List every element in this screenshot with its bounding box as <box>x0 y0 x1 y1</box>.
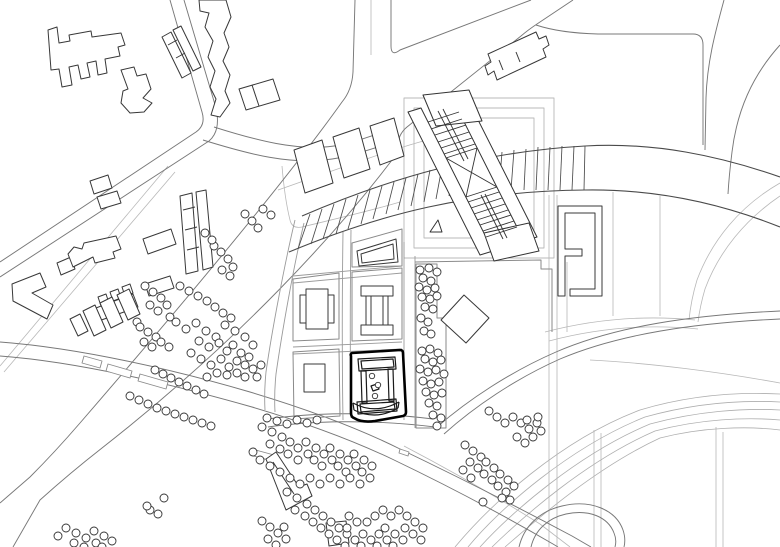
tree-icon <box>371 512 379 520</box>
tree-icon <box>403 512 411 520</box>
tree-icon <box>291 506 299 514</box>
tree-icon <box>284 450 292 458</box>
tree-icon <box>304 450 312 458</box>
tree-icon <box>293 416 301 424</box>
tree-icon <box>372 393 377 398</box>
tree-icon <box>221 321 229 329</box>
tree-icon <box>534 413 542 421</box>
tree-icon <box>360 456 368 464</box>
tree-icon <box>328 456 336 464</box>
tree-icon <box>391 530 399 538</box>
tree-icon <box>336 480 344 488</box>
light-guides-shape <box>590 360 780 383</box>
tree-icon <box>419 274 427 282</box>
tree-icon <box>523 416 531 424</box>
tree-icon <box>154 307 162 315</box>
tree-icon <box>263 414 271 422</box>
tree-icon <box>419 524 427 532</box>
tree-icon <box>459 466 467 474</box>
tree-icon <box>187 349 195 357</box>
tree-icon <box>157 338 165 346</box>
tree-icon <box>211 303 219 311</box>
bridge-band-rungs-shape <box>411 174 418 206</box>
triangle-marker-shape <box>430 220 442 232</box>
tree-icon <box>293 494 301 502</box>
tram-tracks-shape <box>455 393 780 547</box>
tree-icon <box>197 355 205 363</box>
tree-icon <box>469 447 477 455</box>
tree-icon <box>226 272 234 280</box>
tree-icon <box>429 305 437 313</box>
tree-icon <box>363 518 371 526</box>
bridge-band-rungs-shape <box>373 186 382 219</box>
tree-icon <box>498 494 506 502</box>
tree-icon <box>241 373 249 381</box>
tree-icon <box>467 474 475 482</box>
tree-icon <box>266 523 274 531</box>
bridge-band-edges-shape <box>302 145 780 216</box>
tree-icon <box>488 476 496 484</box>
tree-icon <box>62 524 70 532</box>
tree-icon <box>335 524 343 532</box>
tree-icon <box>296 480 304 488</box>
tree-icon <box>237 349 245 357</box>
new-buildings-shape <box>366 296 371 325</box>
tree-icon <box>333 536 341 544</box>
tree-icon <box>70 539 78 547</box>
tree-icon <box>249 341 257 349</box>
bridge-band-rungs-shape <box>424 170 430 202</box>
roads-shape <box>0 0 355 503</box>
tree-icon <box>241 333 249 341</box>
tree-icon <box>411 518 419 526</box>
tree-icon <box>357 542 365 547</box>
tree-icon <box>253 373 261 381</box>
roads-shape <box>728 45 780 194</box>
tree-icon <box>143 502 151 510</box>
tree-icon <box>496 470 504 478</box>
bridge-band-rungs-shape <box>348 195 358 229</box>
existing-buildings-shape <box>199 0 231 117</box>
tree-icon <box>208 236 216 244</box>
tree-icon <box>257 361 265 369</box>
tree-icon <box>341 542 349 547</box>
tree-icon <box>437 414 445 422</box>
tree-icon <box>433 268 441 276</box>
tree-icon <box>233 357 241 365</box>
tree-icon <box>180 413 188 421</box>
tree-icon <box>205 343 213 351</box>
tree-icon <box>280 523 288 531</box>
tree-icon <box>189 416 197 424</box>
new-buildings-shape <box>361 325 393 335</box>
tree-icon <box>258 423 266 431</box>
new-buildings-shape <box>304 364 325 392</box>
tree-icon <box>381 524 389 532</box>
tree-icon <box>430 391 438 399</box>
tree-icon <box>423 286 431 294</box>
tree-icon <box>157 294 165 302</box>
tree-icon <box>148 343 156 351</box>
new-buildings-shape <box>558 206 602 296</box>
tree-icon <box>217 355 225 363</box>
bridge-band-rungs-shape <box>572 146 574 190</box>
tree-icon <box>249 448 257 456</box>
tree-icon <box>326 444 334 452</box>
tree-icon <box>294 444 302 452</box>
new-buildings-shape <box>294 140 333 193</box>
tree-icon <box>416 266 424 274</box>
tree-icon <box>207 422 215 430</box>
tree-icon <box>192 319 200 327</box>
tree-icon <box>249 365 257 373</box>
tree-icon <box>334 462 342 470</box>
tree-icon <box>426 345 434 353</box>
tree-icon <box>352 462 360 470</box>
triangle-marker <box>430 220 442 232</box>
bridge-band-rungs-shape <box>536 147 538 190</box>
tree-icon <box>368 462 376 470</box>
tree-icon <box>375 530 383 538</box>
tree-icon <box>146 301 154 309</box>
existing-buildings-shape <box>68 236 121 267</box>
grid-streets-shape <box>342 232 343 420</box>
tree-icon <box>172 318 180 326</box>
tree-icon <box>409 530 417 538</box>
tree-icon <box>276 445 284 453</box>
roads-shape <box>531 513 616 547</box>
existing-buildings-shape <box>97 191 121 209</box>
tree-icon <box>223 371 231 379</box>
tree-icon <box>258 517 266 525</box>
tree-icon <box>359 530 367 538</box>
roads <box>0 0 780 547</box>
tree-icon <box>219 309 227 317</box>
tree-icon <box>163 301 171 309</box>
tree-icon <box>325 530 333 538</box>
tree-icon <box>276 468 284 476</box>
tree-icon <box>440 370 448 378</box>
tree-icon <box>72 529 80 537</box>
tree-icon <box>294 456 302 464</box>
new-buildings-shape <box>328 295 334 323</box>
tree-icon <box>319 512 327 520</box>
tree-icon <box>461 441 469 449</box>
tree-icon <box>351 536 359 544</box>
tree-icon <box>144 400 152 408</box>
tree-icon <box>433 422 441 430</box>
tree-icon <box>141 282 149 290</box>
tree-icon <box>301 512 309 520</box>
grid-streets-shape <box>293 342 402 347</box>
tree-icon <box>513 433 521 441</box>
tree-icon <box>437 356 445 364</box>
tree-icon <box>160 494 168 502</box>
tree-icon <box>302 438 310 446</box>
tree-icon <box>135 396 143 404</box>
tree-icon <box>311 506 319 514</box>
tree-icon <box>241 361 249 369</box>
tree-icon <box>379 506 387 514</box>
tree-icon <box>317 524 325 532</box>
tree-icon <box>229 263 237 271</box>
tree-icon <box>306 474 314 482</box>
tree-icon <box>389 542 397 547</box>
tree-icon <box>202 327 210 335</box>
roads-shape <box>705 0 724 150</box>
tree-icon <box>506 496 514 504</box>
tree-icon <box>286 474 294 482</box>
tree-icon <box>466 458 474 466</box>
new-buildings-shape <box>306 289 328 329</box>
tree-icon <box>494 482 502 490</box>
tree-icon <box>254 224 262 232</box>
tree-icon <box>90 527 98 535</box>
tree-icon <box>415 283 423 291</box>
road-islands-shape <box>82 356 102 368</box>
tree-icon <box>225 363 233 371</box>
tree-icon <box>346 474 354 482</box>
tree-icon <box>286 438 294 446</box>
tree-icon <box>327 518 335 526</box>
tree-icon <box>165 343 173 351</box>
tree-icon <box>537 427 545 435</box>
tree-icon <box>201 229 209 237</box>
tree-icon <box>303 500 311 508</box>
light-guides <box>0 0 780 547</box>
tree-icon <box>510 482 518 490</box>
tree-icon <box>136 323 144 331</box>
light-guides-shape <box>698 196 780 322</box>
new-buildings-shape <box>333 128 370 178</box>
tree-icon <box>509 413 517 421</box>
tree-icon <box>259 205 267 213</box>
tree-icon <box>438 389 446 397</box>
tree-icon <box>203 297 211 305</box>
roads-shape <box>214 126 396 147</box>
tree-icon <box>200 390 208 398</box>
light-guides-shape <box>0 166 168 366</box>
tree-icon <box>195 337 203 345</box>
site-plan-drawing <box>0 0 780 547</box>
tree-icon <box>435 378 443 386</box>
tree-icon <box>345 512 353 520</box>
tree-icon <box>309 518 317 526</box>
light-guides-shape <box>545 318 695 332</box>
tree-icon <box>421 355 429 363</box>
tree-icon <box>183 382 191 390</box>
tree-icon <box>182 325 190 333</box>
tree-icon <box>521 439 529 447</box>
bridge-band-rungs-shape <box>311 209 322 244</box>
site-plan-canvas <box>0 0 780 547</box>
light-guides-shape <box>689 183 780 320</box>
tree-icon <box>241 210 249 218</box>
tree-icon <box>427 380 435 388</box>
tree-icon <box>82 534 90 542</box>
tree-icon <box>425 399 433 407</box>
tree-icon <box>356 480 364 488</box>
tree-icon <box>100 532 108 540</box>
roads-shape <box>536 25 703 145</box>
tree-icon <box>256 456 264 464</box>
tree-icon <box>433 292 441 300</box>
tree-icon <box>369 373 374 378</box>
new-buildings-shape <box>441 295 489 343</box>
tree-icon <box>479 498 487 506</box>
tree-icon <box>418 293 426 301</box>
tree-icon <box>375 382 380 387</box>
tree-icon <box>525 425 533 433</box>
tree-icon <box>278 433 286 441</box>
tree-icon <box>431 284 439 292</box>
tree-icon <box>493 413 501 421</box>
tree-icon <box>399 536 407 544</box>
tree-icon <box>171 410 179 418</box>
new-buildings-shape <box>361 286 393 296</box>
tree-icon <box>303 419 311 427</box>
light-guides-shape <box>282 166 400 227</box>
tree-icon <box>175 378 183 386</box>
tree-icon <box>387 512 395 520</box>
tree-icon <box>245 353 253 361</box>
roads-shape <box>268 422 435 427</box>
tree-icon <box>266 462 274 470</box>
tree-icon <box>192 386 200 394</box>
existing-buildings-shape <box>239 79 280 110</box>
tree-icon <box>401 524 409 532</box>
tree-icon <box>126 392 134 400</box>
bridge-band-rungs-shape <box>361 190 370 224</box>
tree-icon <box>343 524 351 532</box>
tree-icon <box>480 470 488 478</box>
tree-icon <box>140 338 148 346</box>
tree-icon <box>416 365 424 373</box>
tree-icon <box>366 474 374 482</box>
tree-icon <box>274 529 282 537</box>
tree-icon <box>350 450 358 458</box>
tree-icon <box>159 370 167 378</box>
tree-icon <box>504 476 512 484</box>
tree-icon <box>316 480 324 488</box>
tree-icon <box>149 288 157 296</box>
tree-icon <box>268 428 276 436</box>
tree-icon <box>151 366 159 374</box>
tree-icon <box>108 537 116 545</box>
tree-icon <box>153 404 161 412</box>
tree-icon <box>373 542 381 547</box>
tree-icon <box>267 211 275 219</box>
new-buildings-shape <box>300 295 306 323</box>
tree-icon <box>167 374 175 382</box>
tree-icon <box>283 488 291 496</box>
tree-icon <box>427 330 435 338</box>
tree-icon <box>273 417 281 425</box>
tree-icon <box>474 464 482 472</box>
tree-icon <box>54 532 62 540</box>
existing-buildings-shape <box>121 67 152 113</box>
tree-icon <box>223 347 231 355</box>
tree-icon <box>207 361 215 369</box>
tree-icon <box>417 536 425 544</box>
new-buildings-shape <box>370 118 404 165</box>
existing-buildings-shape <box>12 273 53 319</box>
tree-icon <box>185 287 193 295</box>
tree-icon <box>424 368 432 376</box>
tree-icon <box>283 420 291 428</box>
tree-icon <box>421 303 429 311</box>
tree-icon <box>433 402 441 410</box>
tree-icon <box>231 327 239 335</box>
tree-icon <box>213 369 221 377</box>
tree-icon <box>310 456 318 464</box>
tree-icon <box>395 506 403 514</box>
tree-icon <box>224 255 232 263</box>
grid-streets-shape <box>265 220 295 410</box>
tree-icon <box>218 266 226 274</box>
tree-icon <box>248 217 256 225</box>
tree-icon <box>217 248 225 256</box>
tree-icon <box>318 462 326 470</box>
tree-icon <box>418 347 426 355</box>
road-islands-shape <box>399 449 409 456</box>
tree-icon <box>227 314 235 322</box>
tree-icon <box>144 328 152 336</box>
new-buildings-shape <box>383 296 388 325</box>
tree-icon <box>419 377 427 385</box>
tree-icon <box>233 369 241 377</box>
tree-icon <box>198 419 206 427</box>
tree-icon <box>425 264 433 272</box>
tree-icon <box>154 510 162 518</box>
existing-buildings-shape <box>90 175 112 194</box>
tree-icon <box>336 450 344 458</box>
tree-icon <box>485 407 493 415</box>
bridge-band-rungs-shape <box>398 178 406 210</box>
tree-icon <box>312 444 320 452</box>
tree-icon <box>422 388 430 396</box>
tree-icon <box>215 339 223 347</box>
tree-icon <box>429 358 437 366</box>
bridge-band-rungs-shape <box>548 147 550 190</box>
tree-icon <box>98 543 106 547</box>
existing-buildings-shape <box>180 193 198 274</box>
tree-icon <box>80 543 88 547</box>
tree-icon <box>367 536 375 544</box>
tree-icon <box>313 416 321 424</box>
tree-icon <box>353 518 361 526</box>
tree-icon <box>490 464 498 472</box>
tree-icon <box>264 535 272 543</box>
tree-icon <box>326 474 334 482</box>
tree-icon <box>229 341 237 349</box>
tram-tracks <box>455 393 780 547</box>
tree-icon <box>266 440 274 448</box>
roads-shape <box>519 504 625 547</box>
tree-icon <box>432 366 440 374</box>
bridge-band-rungs-shape <box>560 146 562 190</box>
road-islands-shape <box>106 364 132 378</box>
bridge-band-rungs-shape <box>511 150 514 190</box>
tree-icon <box>424 318 432 326</box>
tree-icon <box>194 292 202 300</box>
bridge-band-rungs-shape <box>584 146 585 190</box>
tree-icon <box>162 407 170 415</box>
tree-icon <box>320 450 328 458</box>
tree-icon <box>482 458 490 466</box>
tree-icon <box>282 535 290 543</box>
existing-buildings-shape <box>48 27 125 87</box>
